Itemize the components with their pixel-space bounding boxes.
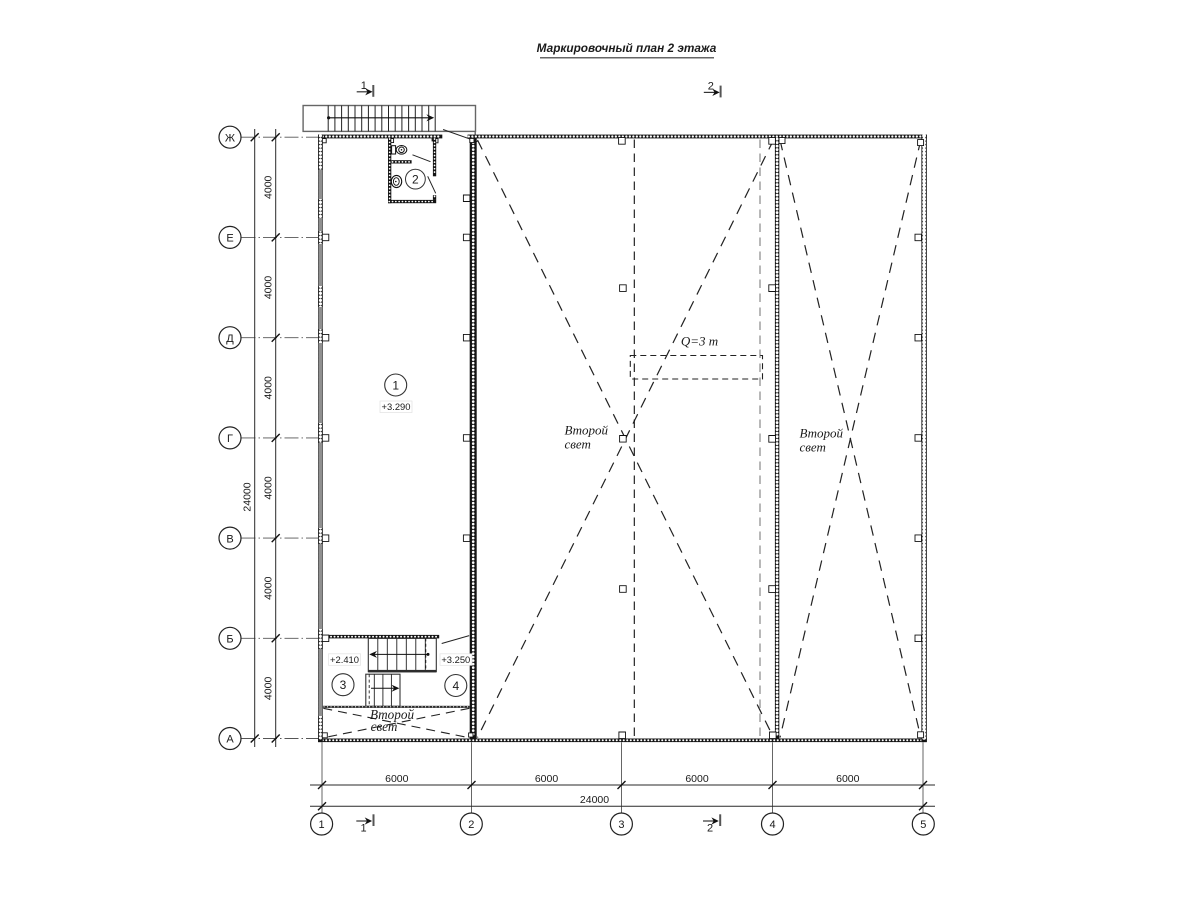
svg-text:4000: 4000: [263, 175, 275, 199]
svg-text:1: 1: [319, 819, 325, 831]
svg-text:Ж: Ж: [225, 132, 235, 144]
svg-text:6000: 6000: [385, 773, 409, 785]
svg-text:свет: свет: [565, 437, 591, 452]
svg-text:А: А: [226, 734, 234, 746]
svg-text:2: 2: [707, 823, 713, 835]
svg-text:4: 4: [452, 679, 459, 693]
svg-text:2: 2: [412, 172, 419, 186]
svg-text:4000: 4000: [263, 476, 275, 500]
svg-text:Маркировочный план 2 этажа: Маркировочный план 2 этажа: [537, 41, 717, 55]
svg-text:4000: 4000: [263, 376, 275, 400]
svg-text:1: 1: [360, 823, 366, 835]
svg-text:Второй: Второй: [800, 426, 844, 441]
svg-text:3: 3: [340, 678, 347, 692]
svg-text:4: 4: [769, 819, 775, 831]
svg-text:6000: 6000: [836, 773, 860, 785]
svg-text:Q=3 т: Q=3 т: [681, 334, 718, 349]
svg-text:4000: 4000: [263, 576, 275, 600]
svg-text:6000: 6000: [535, 773, 559, 785]
svg-text:Е: Е: [226, 233, 233, 245]
svg-text:Г: Г: [227, 433, 233, 445]
svg-text:24000: 24000: [580, 794, 609, 806]
svg-text:В: В: [226, 533, 233, 545]
svg-text:1: 1: [361, 80, 367, 92]
svg-text:3: 3: [618, 819, 624, 831]
svg-text:4000: 4000: [263, 677, 275, 701]
svg-text:Второй: Второй: [565, 423, 609, 438]
svg-text:свет: свет: [371, 719, 398, 734]
svg-text:2: 2: [468, 819, 474, 831]
svg-text:4000: 4000: [263, 276, 275, 300]
svg-text:1: 1: [392, 378, 399, 392]
svg-text:+2.410: +2.410: [330, 654, 359, 665]
svg-text:5: 5: [920, 819, 926, 831]
svg-text:Д: Д: [226, 333, 234, 345]
svg-text:Б: Б: [226, 634, 233, 646]
svg-text:2: 2: [708, 80, 714, 92]
svg-text:+3.290: +3.290: [382, 401, 411, 412]
svg-text:6000: 6000: [685, 773, 709, 785]
svg-text:24000: 24000: [242, 482, 254, 511]
svg-text:свет: свет: [800, 440, 826, 455]
svg-text:+3.250: +3.250: [441, 654, 470, 665]
